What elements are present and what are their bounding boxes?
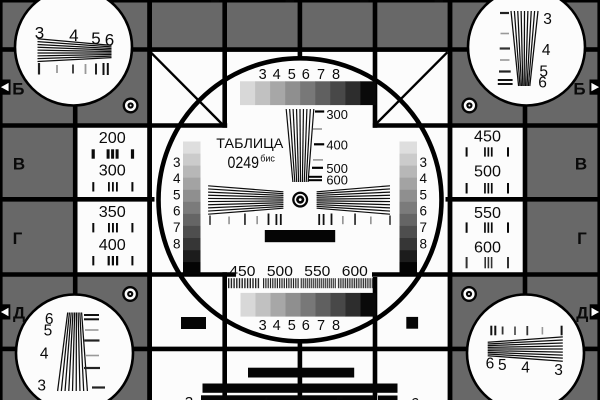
svg-text:400: 400	[326, 138, 348, 153]
svg-text:550: 550	[474, 205, 501, 222]
svg-text:8: 8	[332, 318, 340, 334]
svg-text:7: 7	[317, 67, 325, 83]
svg-text:7: 7	[420, 220, 428, 235]
svg-text:6: 6	[486, 355, 495, 372]
svg-text:550: 550	[304, 264, 330, 280]
svg-text:7: 7	[317, 318, 325, 334]
svg-text:6: 6	[411, 395, 419, 400]
svg-text:5: 5	[173, 187, 181, 202]
svg-text:450: 450	[474, 129, 501, 146]
svg-text:3: 3	[259, 67, 267, 83]
svg-text:Д: Д	[576, 304, 588, 323]
svg-text:Б: Б	[12, 80, 24, 99]
svg-text:3: 3	[185, 394, 193, 400]
svg-text:350: 350	[99, 204, 126, 221]
svg-text:5: 5	[91, 29, 100, 48]
svg-text:7: 7	[173, 220, 181, 235]
svg-text:300: 300	[326, 107, 348, 122]
svg-text:500: 500	[474, 164, 501, 181]
svg-text:6: 6	[420, 204, 428, 219]
svg-text:600: 600	[326, 173, 348, 188]
svg-text:В: В	[13, 154, 25, 173]
svg-text:4: 4	[173, 171, 181, 186]
svg-text:5: 5	[420, 187, 428, 202]
svg-text:3: 3	[554, 362, 563, 379]
svg-text:Г: Г	[577, 229, 587, 248]
svg-text:ТАБЛИЦА: ТАБЛИЦА	[216, 135, 284, 151]
svg-text:3: 3	[173, 155, 181, 170]
svg-text:бис: бис	[260, 154, 275, 164]
svg-text:600: 600	[342, 264, 368, 280]
svg-text:Д: Д	[13, 304, 25, 323]
svg-text:3: 3	[543, 11, 552, 28]
svg-text:В: В	[575, 154, 587, 173]
svg-text:4: 4	[542, 42, 551, 59]
svg-text:5: 5	[336, 395, 344, 400]
svg-text:Г: Г	[13, 229, 23, 248]
svg-text:5: 5	[498, 357, 507, 374]
svg-text:8: 8	[332, 67, 340, 83]
svg-text:8: 8	[420, 236, 428, 251]
svg-text:500: 500	[267, 264, 293, 280]
svg-text:4: 4	[521, 359, 530, 376]
svg-text:4: 4	[69, 26, 78, 45]
svg-text:6: 6	[173, 204, 181, 219]
svg-text:6: 6	[105, 30, 114, 49]
svg-text:3: 3	[35, 24, 44, 43]
svg-text:3: 3	[37, 378, 46, 395]
svg-text:3: 3	[259, 318, 267, 334]
svg-text:450: 450	[229, 264, 255, 280]
svg-text:6: 6	[302, 318, 310, 334]
svg-text:600: 600	[474, 240, 501, 257]
svg-text:5: 5	[288, 67, 296, 83]
svg-text:0249: 0249	[228, 154, 260, 172]
svg-text:4: 4	[420, 171, 428, 186]
svg-text:Б: Б	[573, 80, 585, 99]
svg-text:3: 3	[420, 155, 428, 170]
svg-text:400: 400	[99, 237, 126, 254]
svg-text:6: 6	[538, 75, 547, 92]
svg-text:5: 5	[44, 322, 53, 339]
svg-text:300: 300	[99, 163, 126, 180]
svg-text:4: 4	[40, 345, 49, 362]
svg-text:200: 200	[99, 130, 126, 147]
svg-text:4: 4	[273, 318, 281, 334]
svg-text:8: 8	[173, 236, 181, 251]
svg-text:5: 5	[288, 318, 296, 334]
svg-text:4: 4	[273, 67, 281, 83]
svg-text:6: 6	[302, 67, 310, 83]
svg-text:4: 4	[261, 395, 269, 400]
